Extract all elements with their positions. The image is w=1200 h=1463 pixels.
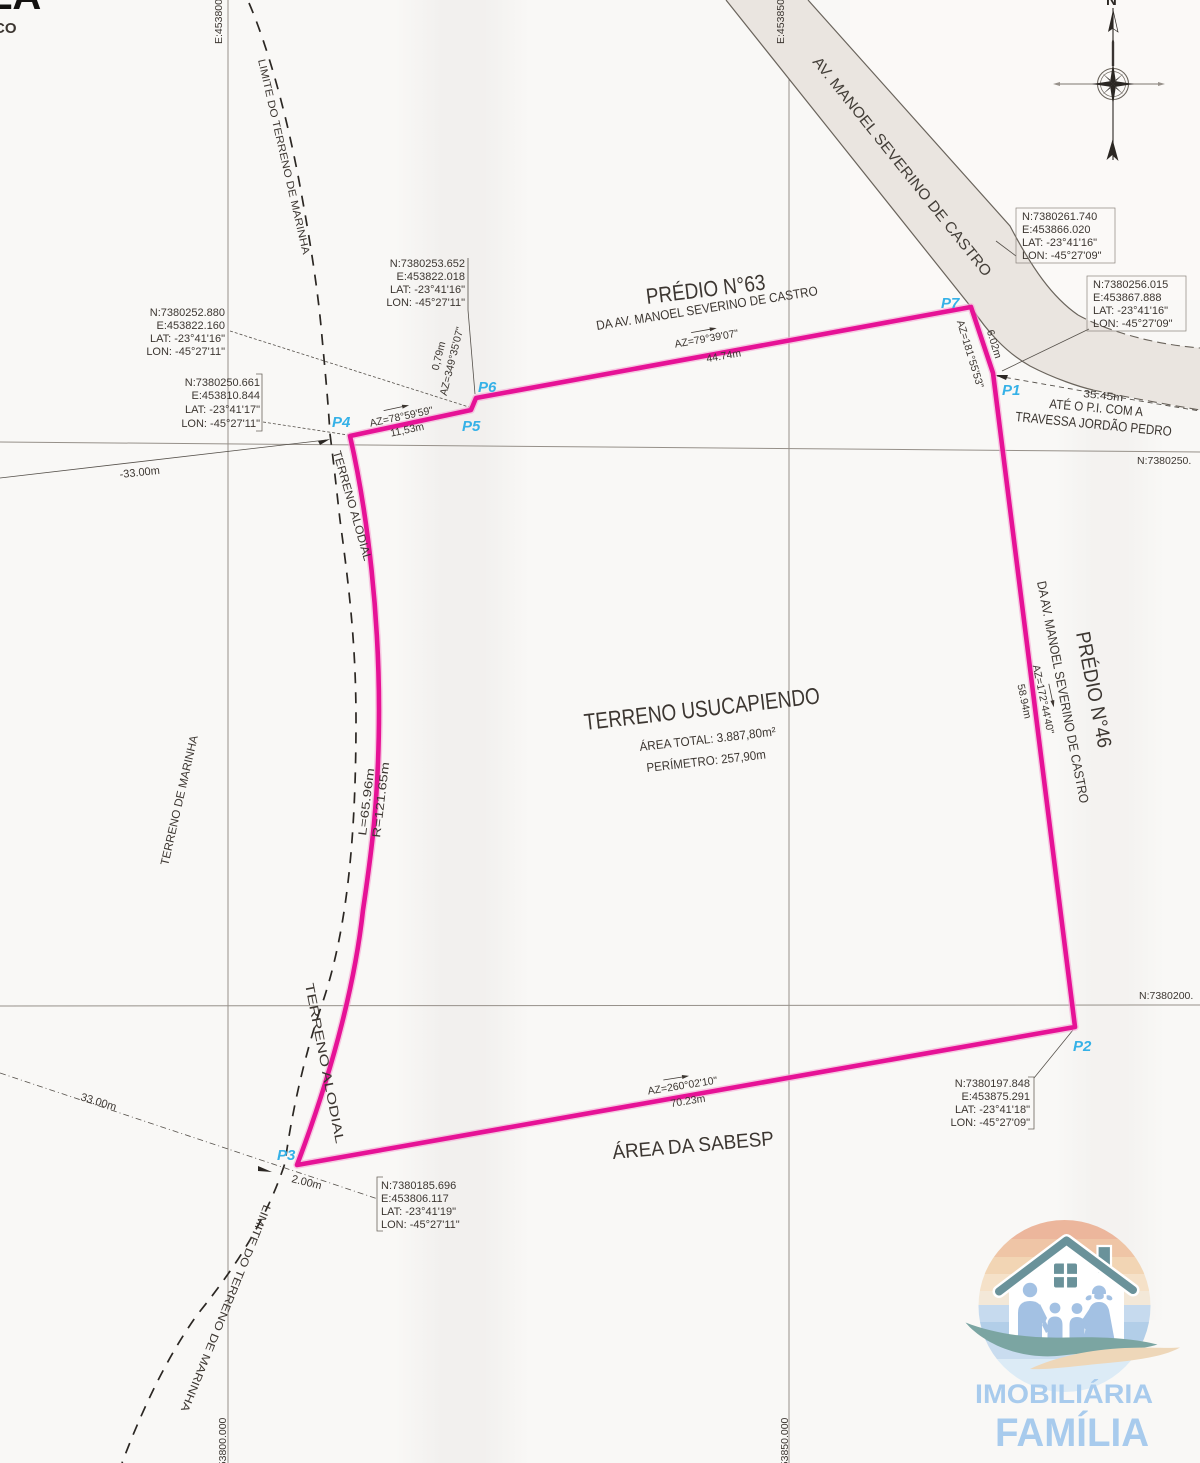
svg-text:N:7380250.: N:7380250. bbox=[1137, 455, 1191, 467]
svg-text:N:7380253.652: N:7380253.652 bbox=[390, 258, 465, 270]
svg-text:LON: -45°27'11": LON: -45°27'11" bbox=[381, 1219, 460, 1231]
svg-text:P5: P5 bbox=[462, 418, 481, 435]
svg-text:N:7380252.880: N:7380252.880 bbox=[150, 307, 225, 319]
svg-text:P3: P3 bbox=[277, 1147, 296, 1164]
svg-text:P6: P6 bbox=[478, 379, 497, 396]
svg-text:N:7380185.696: N:7380185.696 bbox=[381, 1180, 456, 1192]
svg-text:IMOBILIÁRIA: IMOBILIÁRIA bbox=[975, 1378, 1153, 1409]
svg-text:LAT: -23°41'19": LAT: -23°41'19" bbox=[381, 1206, 456, 1218]
svg-text:LON: -45°27'11": LON: -45°27'11" bbox=[146, 346, 225, 358]
svg-text:E:453806.117: E:453806.117 bbox=[381, 1193, 449, 1205]
svg-text:E:453822.018: E:453822.018 bbox=[396, 271, 465, 283]
svg-text:LAT: -23°41'18": LAT: -23°41'18" bbox=[955, 1104, 1030, 1116]
svg-text:E:453850: E:453850 bbox=[775, 0, 787, 44]
svg-text:N:7380256.015: N:7380256.015 bbox=[1093, 279, 1168, 291]
svg-text:E:453850.000: E:453850.000 bbox=[779, 1417, 791, 1463]
svg-text:P7: P7 bbox=[941, 295, 960, 312]
svg-text:LON: -45°27'09": LON: -45°27'09" bbox=[1022, 250, 1102, 262]
svg-text:E:453875.291: E:453875.291 bbox=[961, 1091, 1030, 1103]
svg-text:LAT: -23°41'16": LAT: -23°41'16" bbox=[150, 333, 225, 345]
svg-text:LON: -45°27'11": LON: -45°27'11" bbox=[386, 297, 465, 309]
svg-text:E:453800: E:453800 bbox=[213, 0, 225, 44]
svg-text:CO: CO bbox=[0, 20, 17, 37]
svg-text:N:7380261.740: N:7380261.740 bbox=[1022, 211, 1097, 223]
svg-text:LON: -45°27'09": LON: -45°27'09" bbox=[950, 1117, 1030, 1129]
svg-text:LON: -45°27'11": LON: -45°27'11" bbox=[181, 418, 260, 430]
svg-text:E:453810.844: E:453810.844 bbox=[191, 390, 260, 402]
svg-text:N:7380197.848: N:7380197.848 bbox=[955, 1078, 1030, 1090]
svg-text:E:453800.000: E:453800.000 bbox=[217, 1417, 229, 1463]
svg-text:E:453866.020: E:453866.020 bbox=[1022, 224, 1091, 236]
svg-text:LON: -45°27'09": LON: -45°27'09" bbox=[1093, 318, 1173, 330]
svg-text:E:453822.160: E:453822.160 bbox=[156, 320, 225, 332]
svg-text:LAT: -23°41'16": LAT: -23°41'16" bbox=[390, 284, 465, 296]
svg-text:P1: P1 bbox=[1002, 382, 1020, 399]
svg-text:N: N bbox=[1106, 0, 1117, 9]
svg-text:P2: P2 bbox=[1073, 1038, 1092, 1055]
svg-text:LA: LA bbox=[0, 0, 41, 18]
svg-text:LAT: -23°41'17": LAT: -23°41'17" bbox=[185, 404, 260, 416]
svg-text:LAT: -23°41'16": LAT: -23°41'16" bbox=[1022, 237, 1097, 249]
svg-text:LAT: -23°41'16": LAT: -23°41'16" bbox=[1093, 305, 1168, 317]
svg-text:N:7380200.: N:7380200. bbox=[1139, 990, 1193, 1002]
svg-text:P4: P4 bbox=[332, 414, 351, 431]
svg-text:E:453867.888: E:453867.888 bbox=[1093, 292, 1162, 304]
svg-text:FAMÍLIA: FAMÍLIA bbox=[995, 1410, 1149, 1455]
svg-text:N:7380250.661: N:7380250.661 bbox=[185, 377, 260, 389]
